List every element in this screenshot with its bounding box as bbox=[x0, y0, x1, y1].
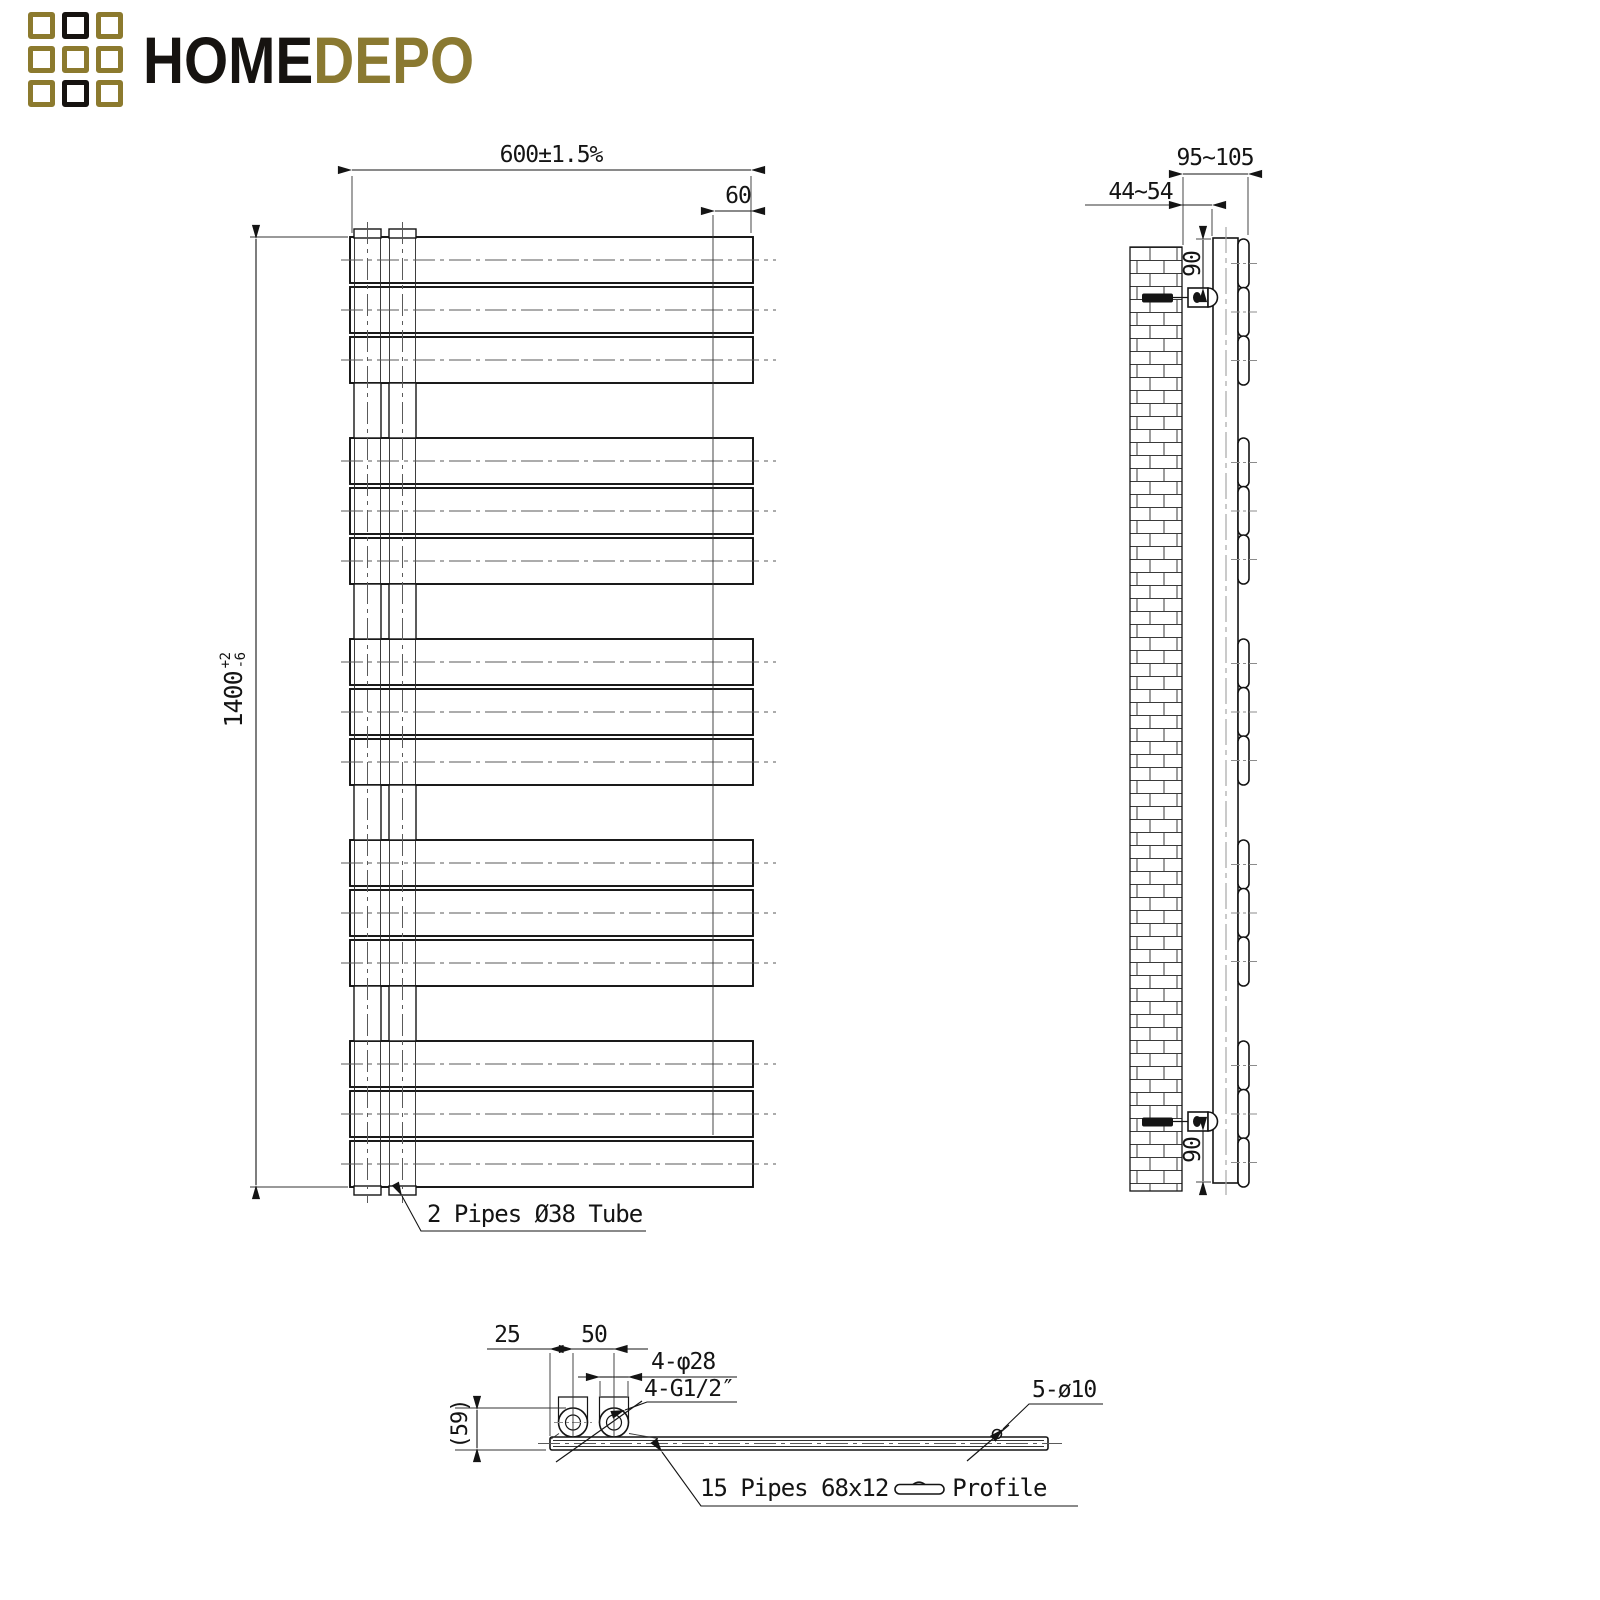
dim-small-holes: 5-ø10 bbox=[1032, 1378, 1096, 1402]
dim-total-depth: 95~105 bbox=[1145, 146, 1285, 170]
dim-height-ref: (59) bbox=[449, 1389, 473, 1459]
label-pipes: 2 Pipes Ø38 Tube bbox=[427, 1202, 642, 1227]
dim-bracket-bottom: 90 bbox=[1182, 1124, 1204, 1176]
dim-bracket-top: 90 bbox=[1182, 238, 1204, 290]
flat-profile-icon bbox=[893, 1480, 947, 1497]
side-bar-profiles bbox=[1238, 239, 1249, 1187]
drain-hole bbox=[993, 1430, 1002, 1439]
label-profile: 15 Pipes 68x12 Profile bbox=[700, 1476, 1046, 1501]
dim-height-value: 1400 bbox=[221, 671, 247, 727]
dim-wall-gap: 44~54 bbox=[1078, 180, 1203, 204]
drawing-sheet: HOMEDEPO .bar{fill:#fff;stroke:#0f0f0f;s… bbox=[0, 0, 1600, 1600]
dim-bosses: 4-φ28 bbox=[651, 1350, 715, 1374]
dim-edge-to-pipe: 25 bbox=[477, 1323, 537, 1347]
label-profile-post: Profile bbox=[952, 1476, 1046, 1501]
dim-height-tolerance: +2 -6 bbox=[219, 652, 248, 668]
dim-height: 1400 +2 -6 bbox=[217, 615, 251, 765]
dim-width: 600±1.5% bbox=[451, 143, 651, 167]
technical-drawing-linework: .bar{fill:#fff;stroke:#0f0f0f;stroke-wid… bbox=[0, 0, 1600, 1600]
dim-threads: 4-G1/2″ bbox=[644, 1377, 734, 1401]
wall-section bbox=[1130, 247, 1182, 1191]
bottom-pipe-ports bbox=[559, 1397, 629, 1437]
dim-pipe-spacing: 50 bbox=[564, 1323, 624, 1347]
label-profile-pre: 15 Pipes 68x12 bbox=[700, 1476, 888, 1501]
dim-right-offset: 60 bbox=[703, 184, 773, 208]
